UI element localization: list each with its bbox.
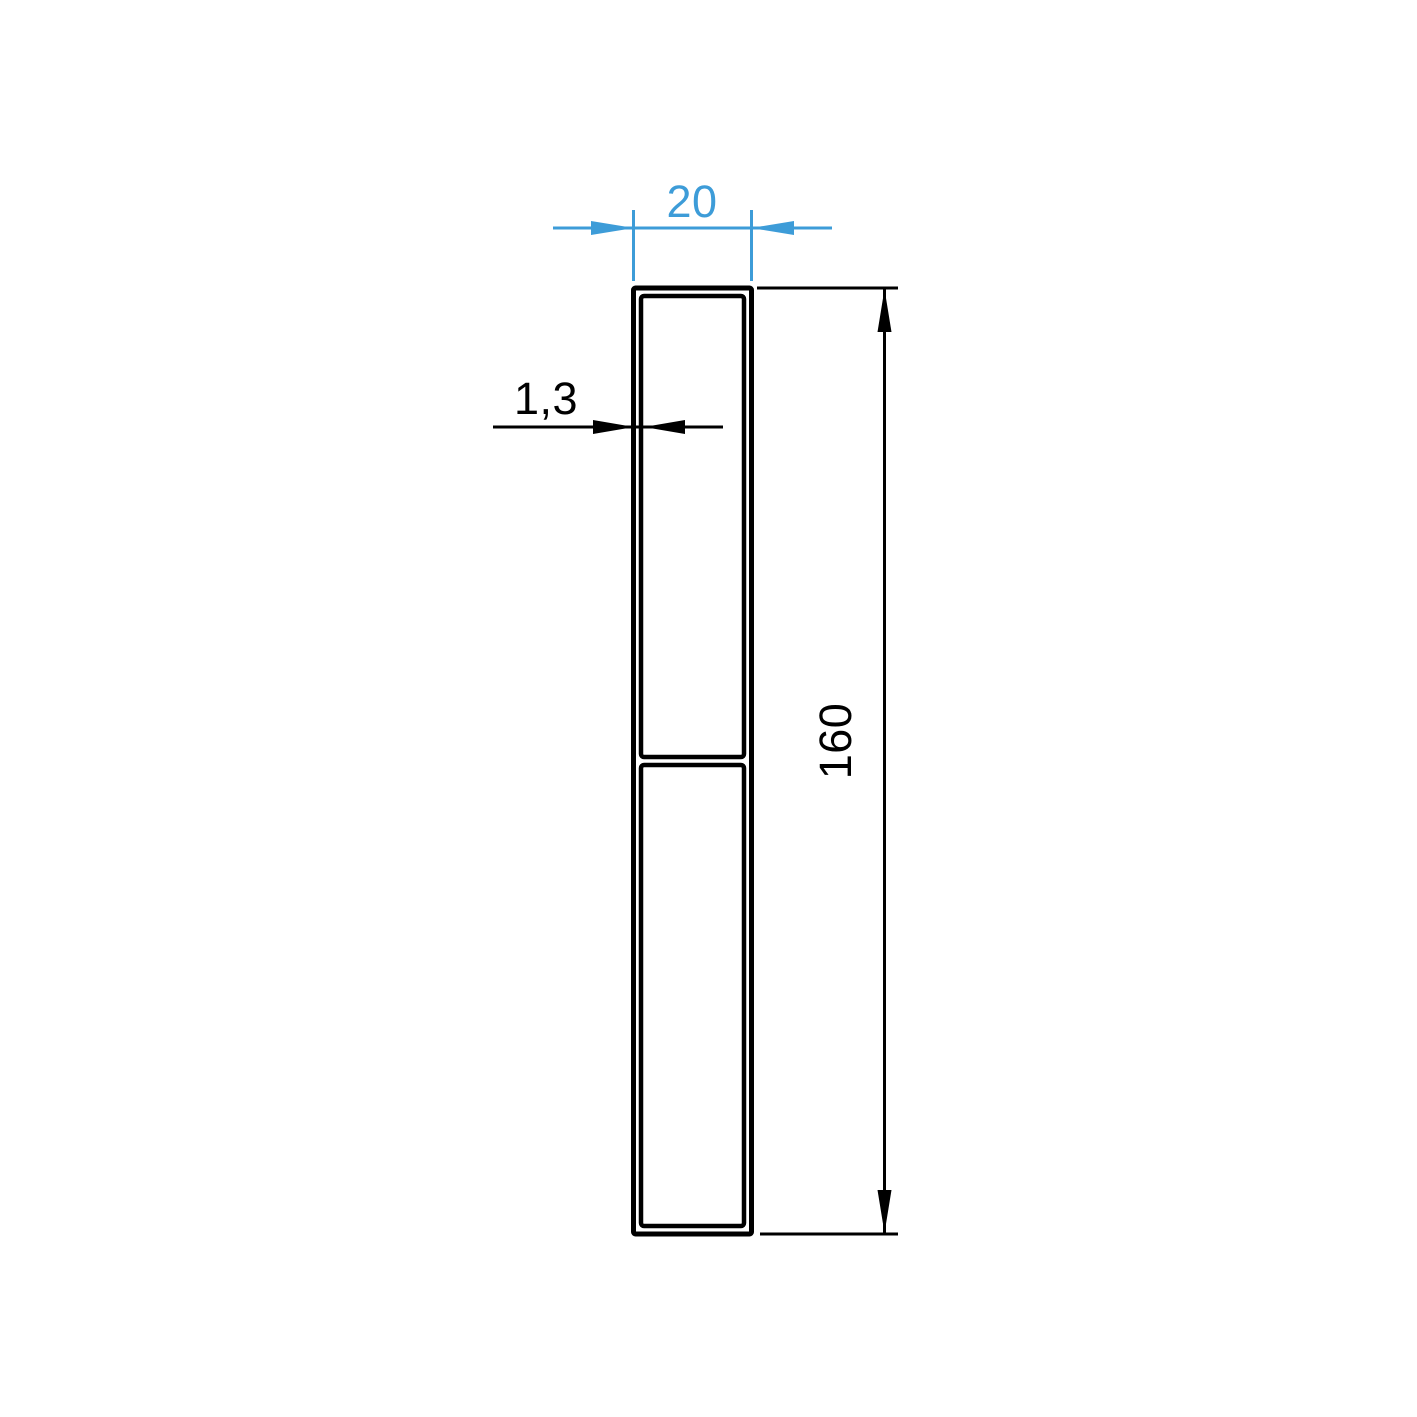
technical-drawing-canvas: 20 1,3 160 [0,0,1417,1417]
profile-outer-contour [634,288,752,1234]
thickness-arrowhead-left-icon [593,420,634,434]
width-arrowhead-left-icon [591,221,634,235]
profile-inner-contour-top [641,296,744,757]
profile-inner-contour-bottom [641,765,744,1226]
width-arrowhead-right-icon [751,221,794,235]
tube-profile-dimension-drawing: 20 1,3 160 [0,0,1417,1417]
thickness-dimension-label: 1,3 [514,373,578,424]
thickness-arrowhead-right-icon [644,420,685,434]
height-arrowhead-top-icon [878,289,892,332]
height-dimension-label: 160 [810,703,861,780]
width-dimension-label: 20 [666,176,717,227]
height-arrowhead-bottom-icon [878,1190,892,1233]
